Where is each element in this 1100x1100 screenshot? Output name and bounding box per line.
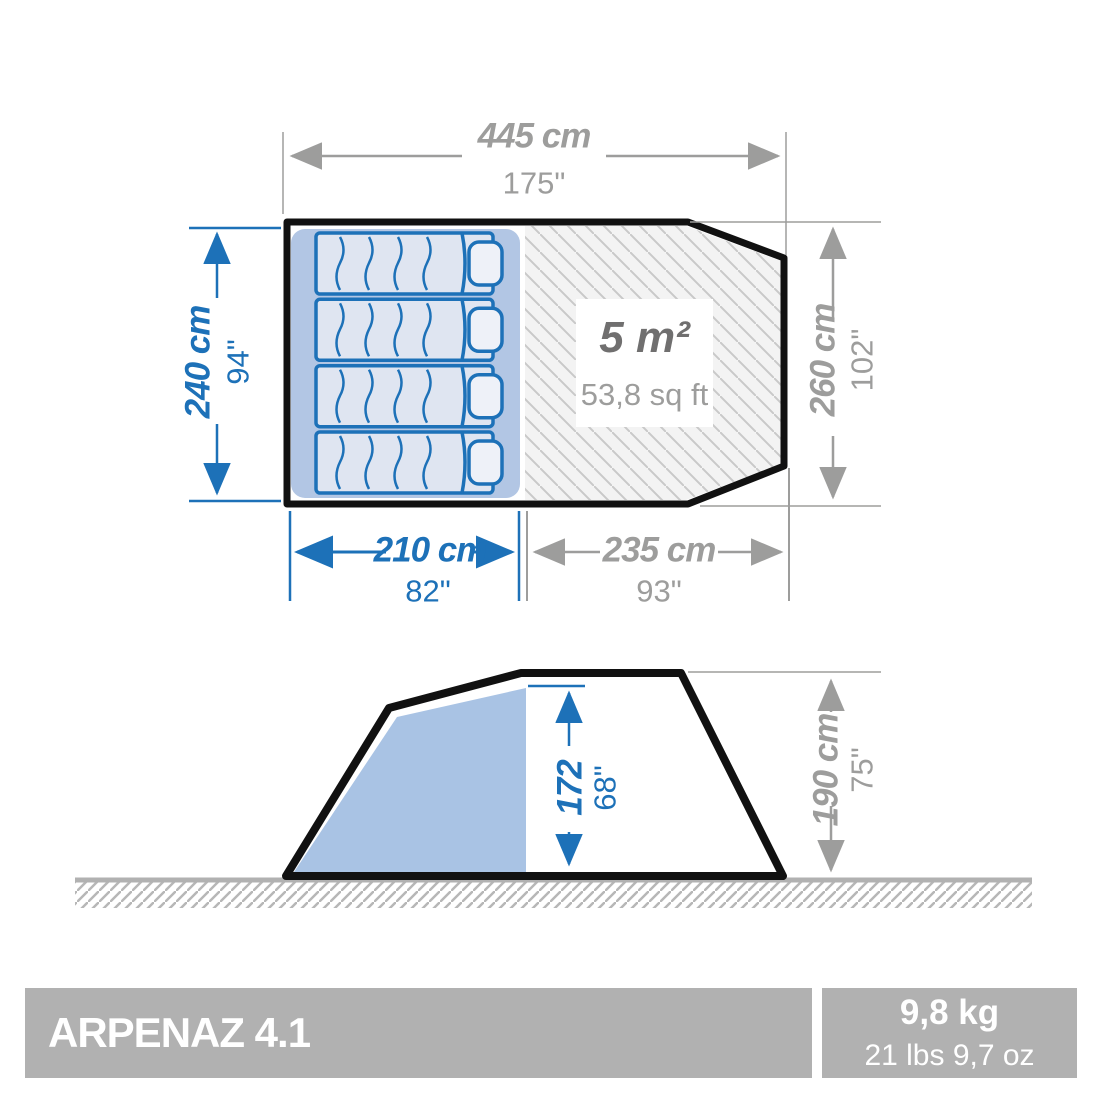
- product-name: ARPENAZ 4.1: [25, 1009, 310, 1057]
- dim-living-width-imperial: 93": [636, 576, 682, 607]
- dim-cabin-height-metric: 172: [553, 760, 588, 815]
- area-imperial: 53,8 sq ft: [581, 377, 709, 413]
- dim-total-width-metric: 445 cm: [478, 119, 591, 154]
- dim-living-width-metric: 235 cm: [603, 533, 716, 568]
- dim-depth-imperial: 94": [223, 339, 254, 385]
- mattress: [316, 432, 502, 493]
- product-name-bar: ARPENAZ 4.1: [25, 988, 812, 1078]
- weight-metric: 9,8 kg: [900, 993, 999, 1033]
- tent-dimensions-diagram: 445 cm 175" 240 cm 94" 260 cm 102" 210 c…: [0, 0, 1100, 1100]
- dim-right-width-metric: 260 cm: [806, 304, 841, 417]
- dim-cabin-height-imperial: 68": [590, 765, 621, 811]
- mattress: [316, 233, 502, 294]
- mattress: [316, 366, 502, 427]
- area-label-box: 5 m² 53,8 sq ft: [576, 299, 713, 427]
- weight-badge: 9,8 kg 21 lbs 9,7 oz: [822, 988, 1077, 1078]
- dim-tent-height-imperial: 75": [847, 747, 878, 793]
- ground-hatch: [75, 882, 1032, 908]
- dim-right-width-imperial: 102": [847, 329, 878, 392]
- dim-bedroom-width-metric: 210 cm: [374, 533, 487, 568]
- dim-tent-height-metric: 190 cm: [809, 714, 844, 827]
- dim-depth-metric: 240 cm: [181, 306, 216, 419]
- dim-total-width-imperial: 175": [503, 168, 566, 199]
- mattress: [316, 299, 502, 360]
- weight-imperial: 21 lbs 9,7 oz: [864, 1039, 1034, 1073]
- area-metric: 5 m²: [599, 313, 689, 363]
- cabin-profile-fill: [294, 688, 526, 872]
- dim-bedroom-width-imperial: 82": [405, 576, 451, 607]
